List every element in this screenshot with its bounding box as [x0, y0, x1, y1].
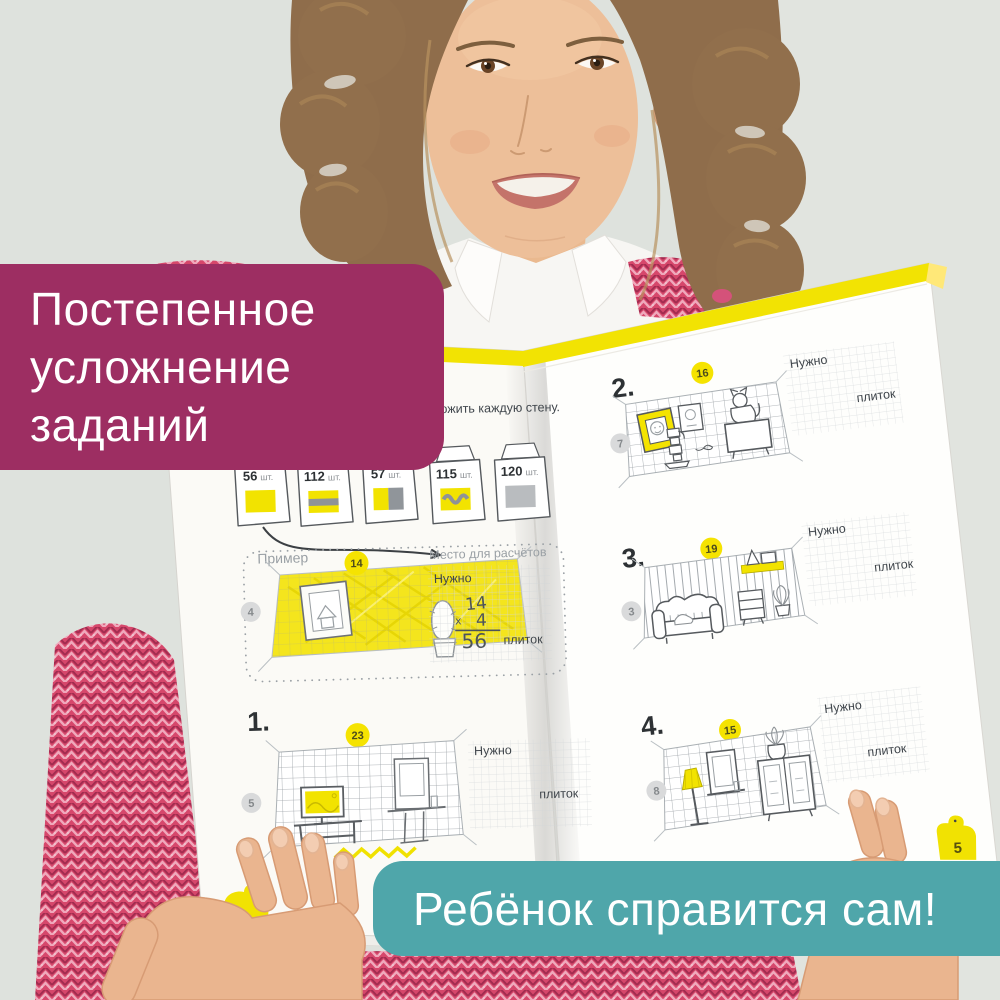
pink-hair-accessory [712, 289, 732, 303]
tile-swatch-solid-yellow [245, 490, 276, 513]
example-picture-frame [300, 581, 352, 640]
benefit-text: Ребёнок справится сам! [413, 882, 937, 936]
photo-scene: , чтобы выложить каждую стену. дей плитк… [0, 0, 1000, 1000]
benefit-line: заданий [30, 396, 444, 454]
hw-multiply-sign: х [455, 614, 462, 627]
width-badge-value: 14 [350, 558, 363, 570]
height-badge-value: 3 [628, 606, 635, 619]
palm [118, 897, 365, 1000]
task-number: 4. [639, 710, 665, 742]
height-badge-value: 5 [248, 798, 254, 810]
benefit-card-teal: Ребёнок справится сам! [373, 861, 1000, 956]
benefit-card-purple: Постепенное усложнение заданий [0, 264, 444, 470]
task-number: 3. [620, 542, 646, 574]
pack-count: 56 [243, 468, 258, 483]
width-badge-value: 19 [705, 543, 718, 556]
need-label: Нужно [434, 571, 472, 586]
pack-unit: шт. [525, 467, 538, 477]
benefit-line: Постепенное [30, 280, 444, 338]
tv-cabinet [725, 419, 772, 452]
pack-unit: шт. [388, 470, 401, 480]
cheek-right [594, 125, 630, 147]
units-label: плиток [539, 786, 579, 801]
pack-unit: шт. [328, 472, 341, 482]
example-label: Пример [257, 549, 308, 566]
pack-count: 112 [304, 469, 325, 485]
pack-unit: шт. [460, 470, 473, 480]
width-badge-value: 16 [696, 367, 710, 380]
width-badge-value: 15 [723, 724, 737, 737]
task-number: 2. [610, 371, 636, 404]
cheek-left [450, 130, 490, 154]
need-label: Нужно [474, 743, 512, 758]
pack-count: 120 [501, 463, 523, 479]
units-label: плиток [503, 632, 543, 647]
task-number: 1. [247, 706, 270, 737]
tile-swatch-half [388, 488, 404, 510]
pack-count: 115 [436, 466, 457, 482]
tile-swatch-gray [505, 485, 536, 508]
width-badge-value: 23 [351, 730, 364, 742]
tile-swatch-stripe [308, 498, 338, 506]
page-number: 5 [953, 840, 962, 857]
benefit-line: усложнение [30, 338, 444, 396]
small-picture-frame [678, 403, 703, 431]
pack-unit: шт. [260, 472, 273, 482]
hw-result: 56 [461, 629, 487, 654]
